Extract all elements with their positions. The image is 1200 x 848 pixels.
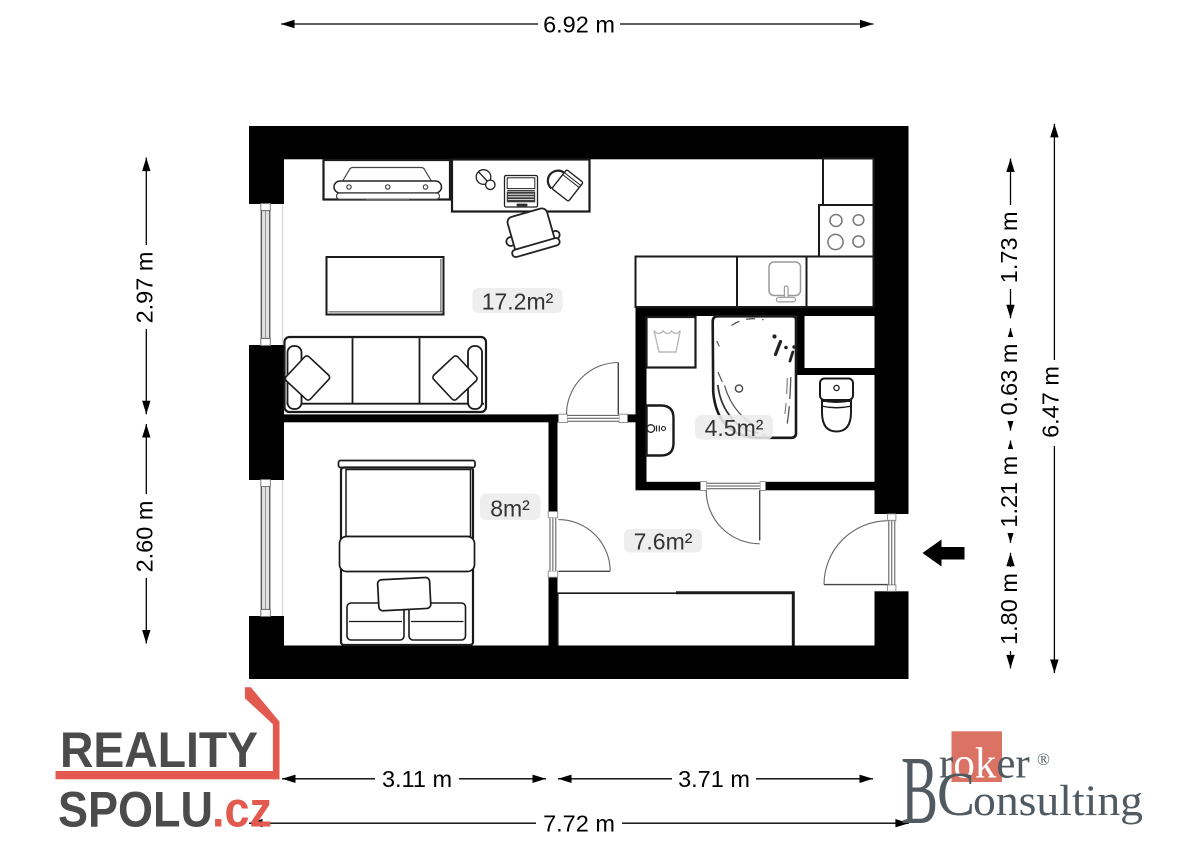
svg-text:3.71 m: 3.71 m	[678, 766, 750, 792]
svg-text:2.97 m: 2.97 m	[132, 252, 158, 324]
svg-text:B: B	[901, 737, 938, 844]
svg-text:SPOLU: SPOLU	[58, 782, 213, 838]
svg-text:4.5m²: 4.5m²	[705, 415, 764, 441]
svg-text:6.92 m: 6.92 m	[543, 11, 615, 37]
svg-text:REALITY: REALITY	[60, 722, 258, 778]
svg-text:8m²: 8m²	[490, 496, 530, 522]
svg-text:7.6m²: 7.6m²	[634, 529, 693, 555]
svg-text:onsulting: onsulting	[973, 778, 1143, 825]
svg-text:17.2m²: 17.2m²	[482, 289, 554, 315]
svg-text:6.47 m: 6.47 m	[1037, 366, 1063, 438]
svg-text:2.60 m: 2.60 m	[132, 501, 158, 573]
svg-text:1.73 m: 1.73 m	[996, 211, 1022, 283]
svg-text:C: C	[937, 761, 975, 829]
svg-text:3.11 m: 3.11 m	[382, 766, 452, 792]
svg-text:1.21 m: 1.21 m	[996, 456, 1022, 528]
svg-text:.cz: .cz	[212, 782, 272, 838]
svg-text:7.72 m: 7.72 m	[543, 811, 615, 837]
svg-text:0.63 m: 0.63 m	[996, 344, 1022, 416]
svg-text:1.80 m: 1.80 m	[996, 573, 1022, 645]
svg-text:®: ®	[1037, 750, 1050, 769]
